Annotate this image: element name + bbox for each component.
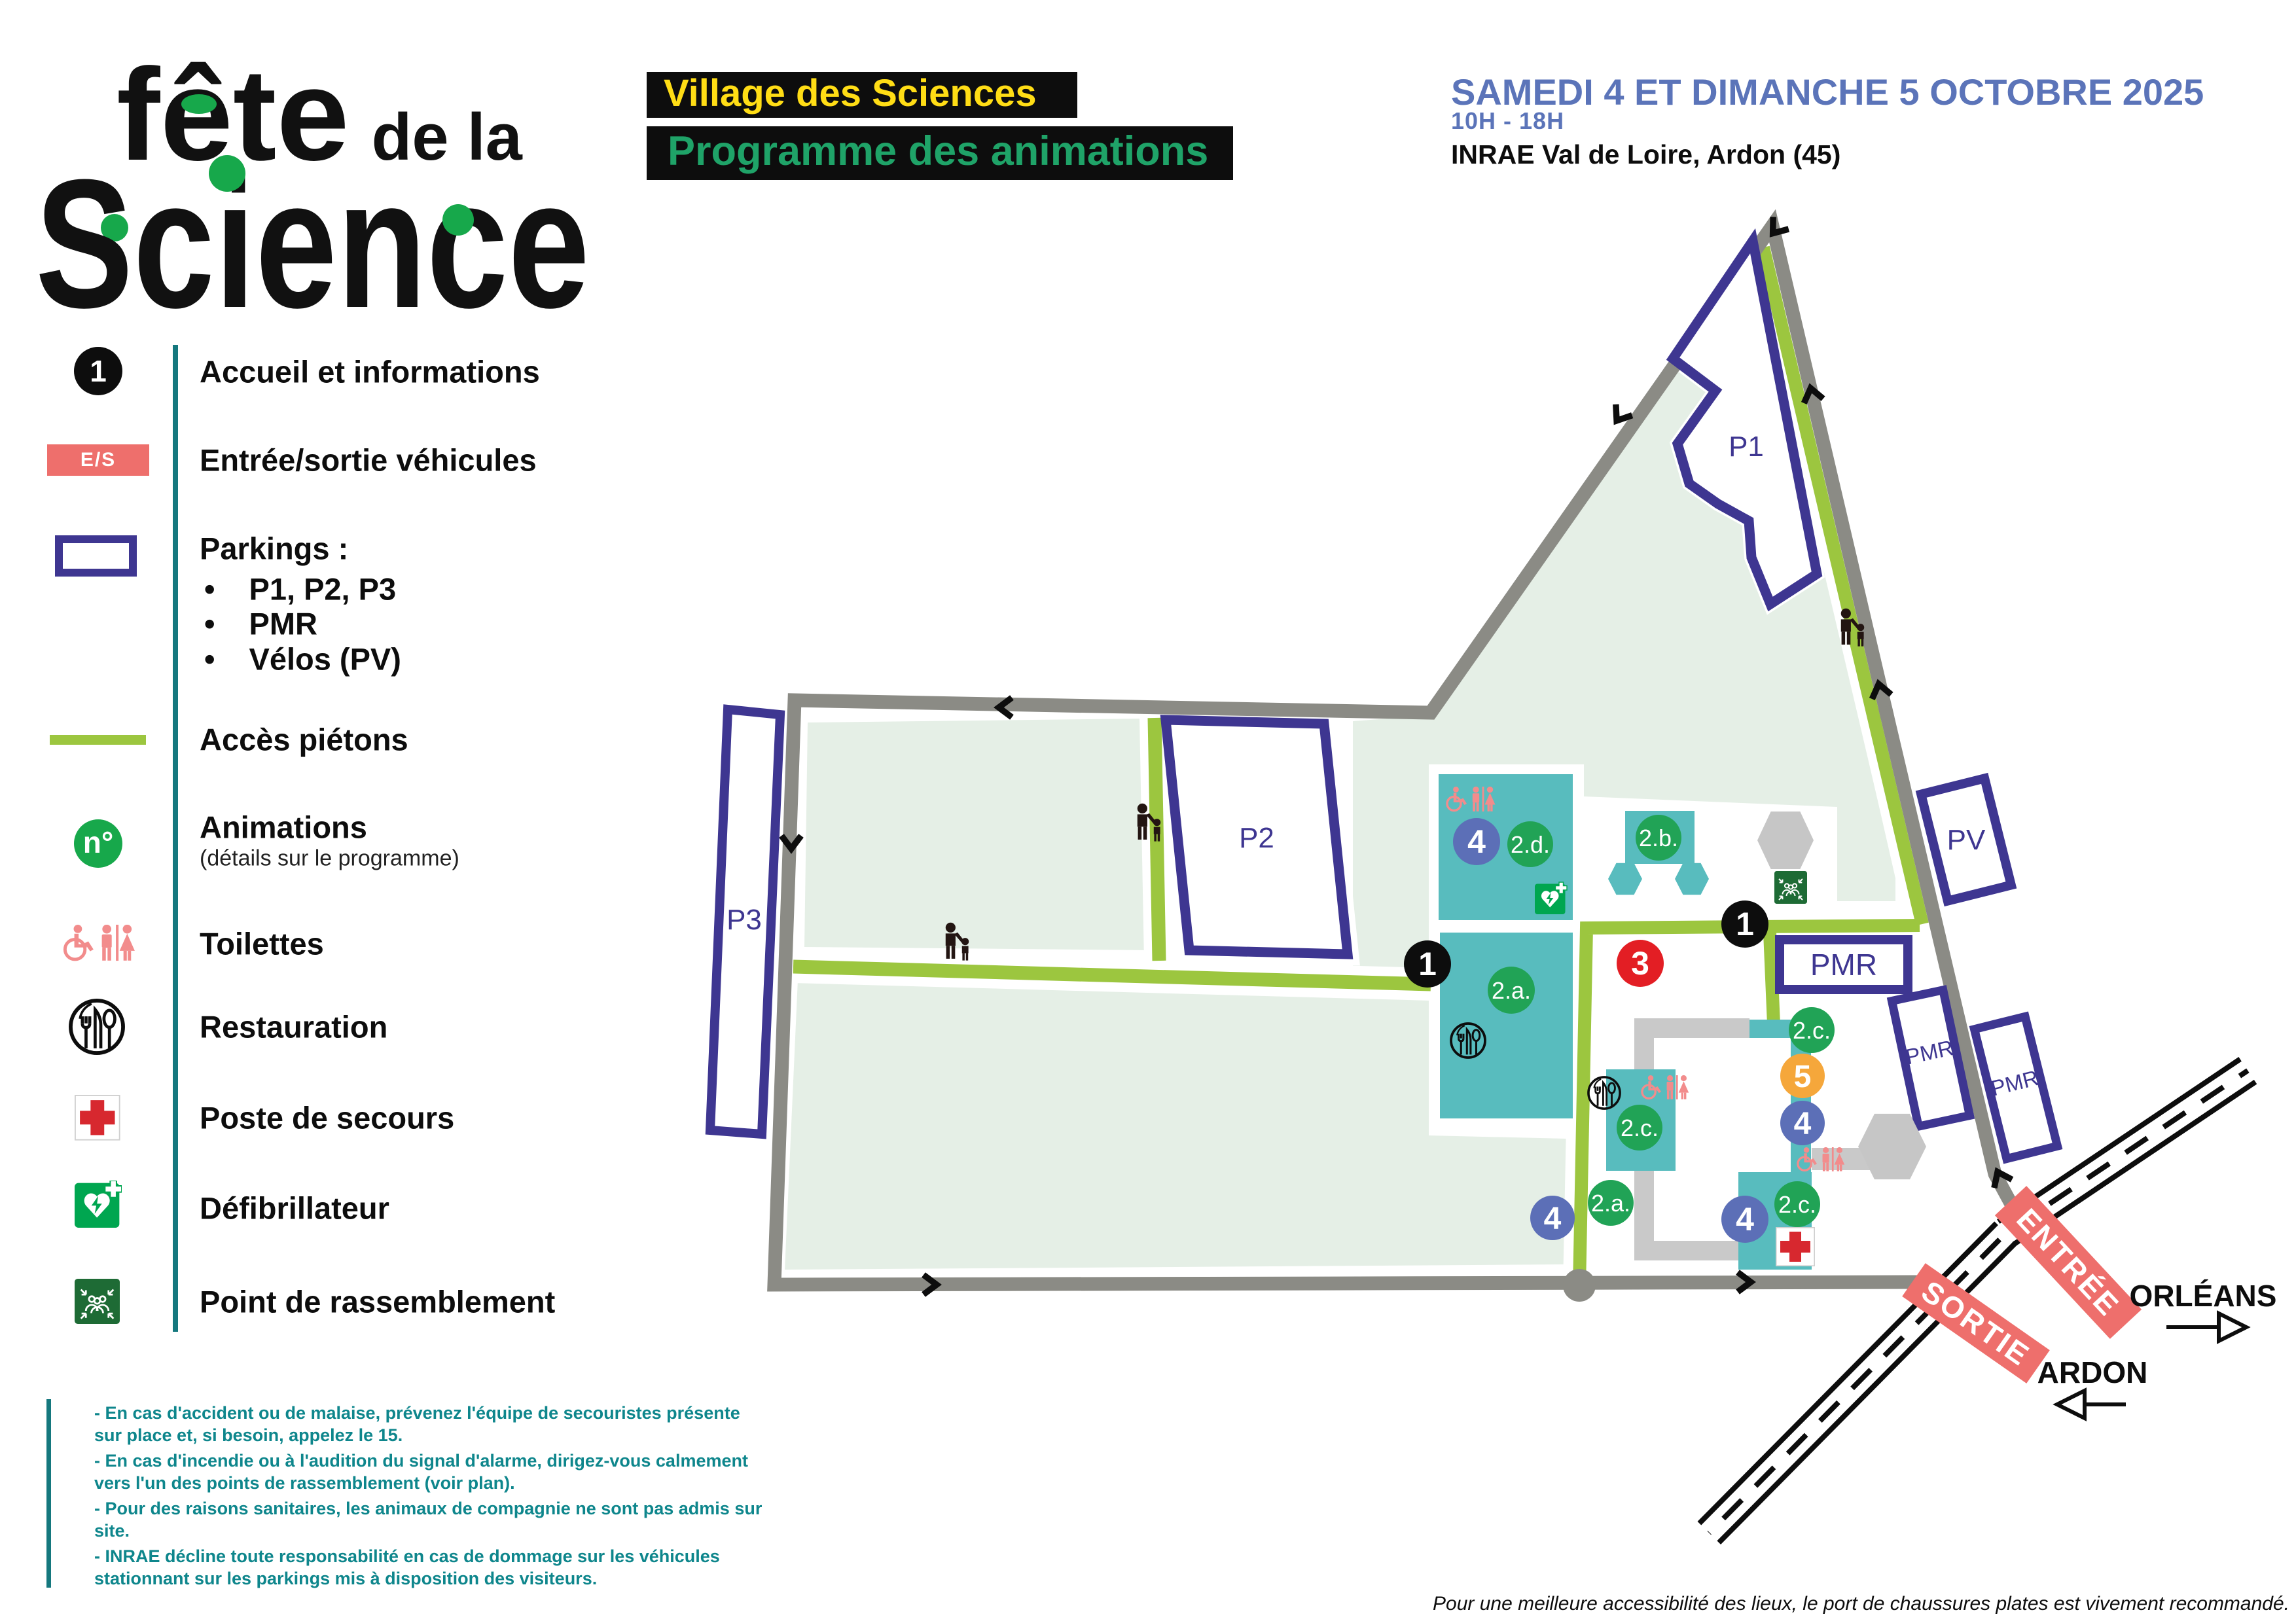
svg-text:2.d.: 2.d. [1511,831,1550,858]
svg-text:2.c.: 2.c. [1621,1115,1659,1141]
svg-text:1: 1 [1418,946,1437,982]
svg-text:P1: P1 [1729,431,1764,463]
svg-text:P3: P3 [726,904,762,936]
svg-text:5: 5 [1794,1060,1812,1094]
svg-text:PMR: PMR [1810,948,1877,982]
svg-text:1: 1 [1736,906,1754,942]
svg-text:PV: PV [1947,824,1986,856]
svg-text:2.a.: 2.a. [1492,977,1531,1004]
svg-text:P2: P2 [1239,822,1274,854]
svg-text:4: 4 [1544,1202,1562,1236]
svg-text:2.c.: 2.c. [1778,1191,1816,1218]
svg-text:4: 4 [1794,1107,1812,1141]
svg-text:ORLÉANS: ORLÉANS [2130,1279,2277,1313]
svg-text:3: 3 [1631,945,1649,982]
svg-text:2.c.: 2.c. [1793,1017,1831,1044]
svg-text:ARDON: ARDON [2037,1355,2148,1389]
svg-text:2.b.: 2.b. [1639,825,1678,851]
svg-text:4: 4 [1467,823,1486,860]
svg-text:4: 4 [1736,1201,1754,1238]
svg-text:ENTRÉE: ENTRÉE [2010,1202,2126,1323]
svg-text:2.a.: 2.a. [1591,1190,1630,1217]
